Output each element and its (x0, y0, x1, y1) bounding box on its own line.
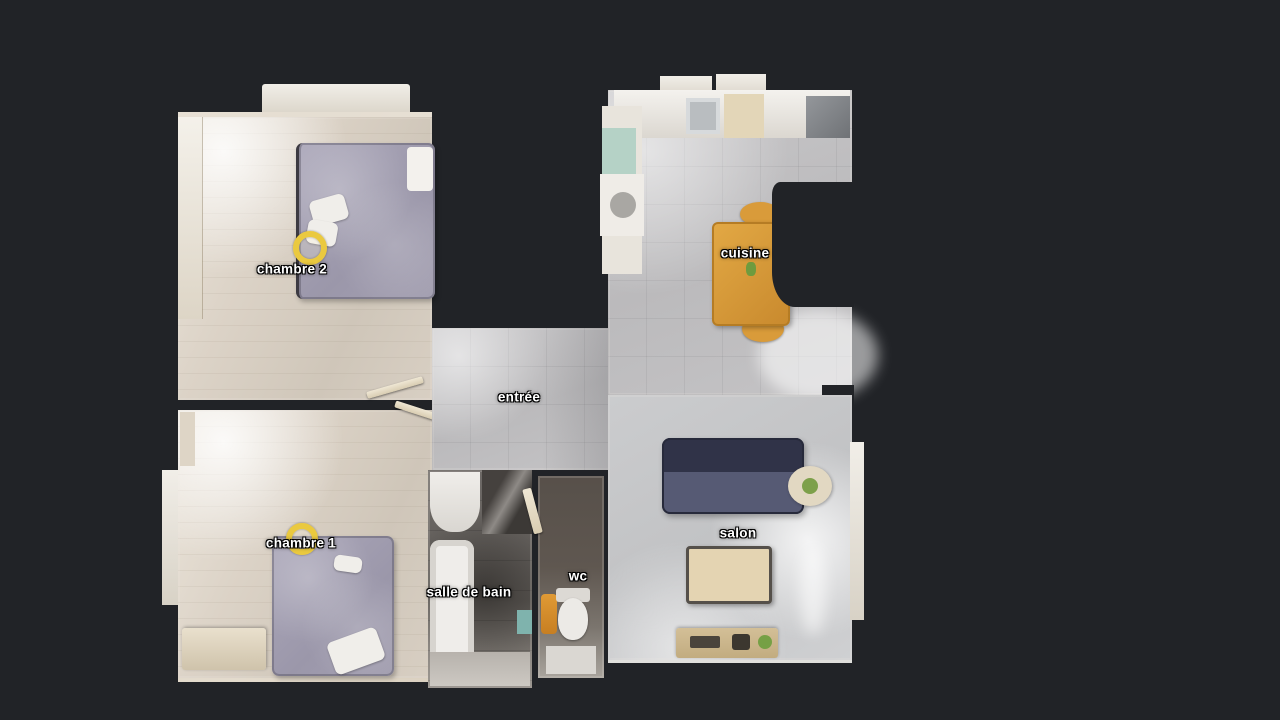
plant (758, 635, 772, 649)
side-table (788, 466, 832, 506)
room-label-chambre-1: chambre 1 (266, 536, 336, 551)
teal-counter (602, 128, 636, 174)
folded-sheet (407, 147, 433, 191)
bathtub (430, 540, 474, 666)
bathroom-floor-light (430, 652, 530, 686)
cutting-board (724, 94, 764, 138)
stove (806, 96, 850, 138)
floor-shadow (542, 328, 612, 470)
room-label-entree: entrée (498, 390, 540, 405)
room-label-salon: salon (720, 526, 757, 541)
console-items (690, 636, 720, 648)
bath-mat (517, 610, 532, 634)
pillow (333, 554, 363, 574)
wardrobe (180, 412, 195, 466)
wc-mat (546, 646, 596, 674)
room-label-salle-de-bain: salle de bain (427, 585, 512, 600)
table-plant (746, 262, 756, 276)
kitchen-sink (686, 98, 720, 134)
toilet (558, 598, 588, 640)
room-label-chambre-2: chambre 2 (257, 262, 327, 277)
salon-right-wall (850, 442, 864, 620)
sofa (662, 438, 804, 514)
coffee-table (686, 546, 772, 604)
scan-hole (772, 182, 854, 307)
pillow (326, 626, 386, 676)
room-salle-de-bain[interactable] (428, 470, 532, 688)
washing-machine (600, 174, 644, 236)
laundry-basket (541, 594, 557, 634)
bed (272, 536, 394, 676)
window-light (800, 545, 826, 635)
room-label-cuisine: cuisine (721, 246, 770, 261)
window-bay-chambre-1 (162, 470, 179, 605)
dresser (182, 628, 266, 670)
plant (802, 478, 818, 494)
wardrobe (178, 117, 202, 319)
console-items (732, 634, 750, 650)
floorplan-view: chambre 2 chambre 1 entrée salle de bain… (0, 0, 1280, 720)
washing-machine-door (610, 192, 636, 218)
tv-console (676, 628, 778, 658)
room-label-wc: wc (569, 569, 588, 584)
yellow-ring-object (293, 231, 327, 265)
washbasin (430, 472, 480, 532)
